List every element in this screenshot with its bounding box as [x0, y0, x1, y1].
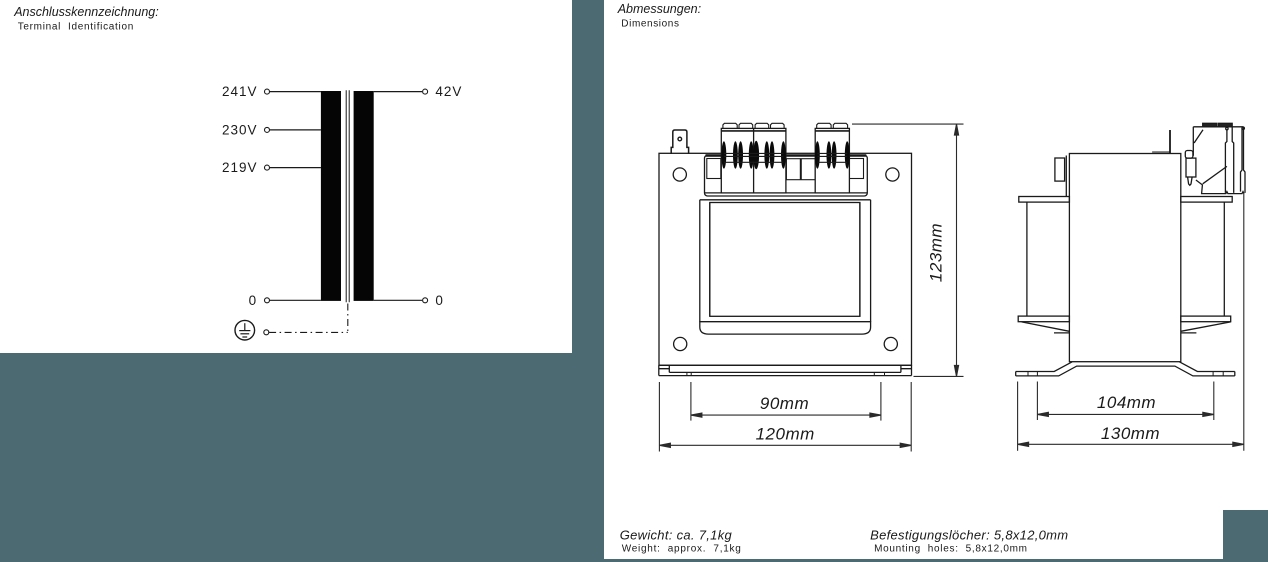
svg-text:130mm: 130mm — [1101, 424, 1160, 443]
svg-text:0: 0 — [249, 293, 258, 308]
svg-text:Befestigungslöcher: 5,8x12,0mm: Befestigungslöcher: 5,8x12,0mm — [870, 528, 1068, 543]
svg-text:230V: 230V — [222, 123, 258, 138]
svg-text:Gewicht: ca. 7,1kg: Gewicht: ca. 7,1kg — [620, 528, 733, 543]
svg-text:42V: 42V — [435, 84, 462, 99]
svg-text:120mm: 120mm — [756, 425, 815, 444]
svg-text:Anschlusskennzeichnung:: Anschlusskennzeichnung: — [13, 5, 159, 19]
svg-text:Mounting holes: 5,8x12,0mm: Mounting holes: 5,8x12,0mm — [874, 543, 1028, 554]
svg-text:Terminal Identification: Terminal Identification — [18, 22, 134, 33]
svg-text:219V: 219V — [222, 160, 258, 175]
svg-text:90mm: 90mm — [760, 394, 809, 413]
svg-text:Weight: approx. 7,1kg: Weight: approx. 7,1kg — [622, 543, 742, 554]
svg-text:Dimensions: Dimensions — [621, 19, 679, 30]
svg-text:104mm: 104mm — [1097, 393, 1156, 412]
svg-text:Abmessungen:: Abmessungen: — [617, 2, 701, 16]
svg-text:241V: 241V — [222, 84, 258, 99]
svg-text:0: 0 — [435, 293, 444, 308]
svg-text:123mm: 123mm — [927, 223, 946, 282]
